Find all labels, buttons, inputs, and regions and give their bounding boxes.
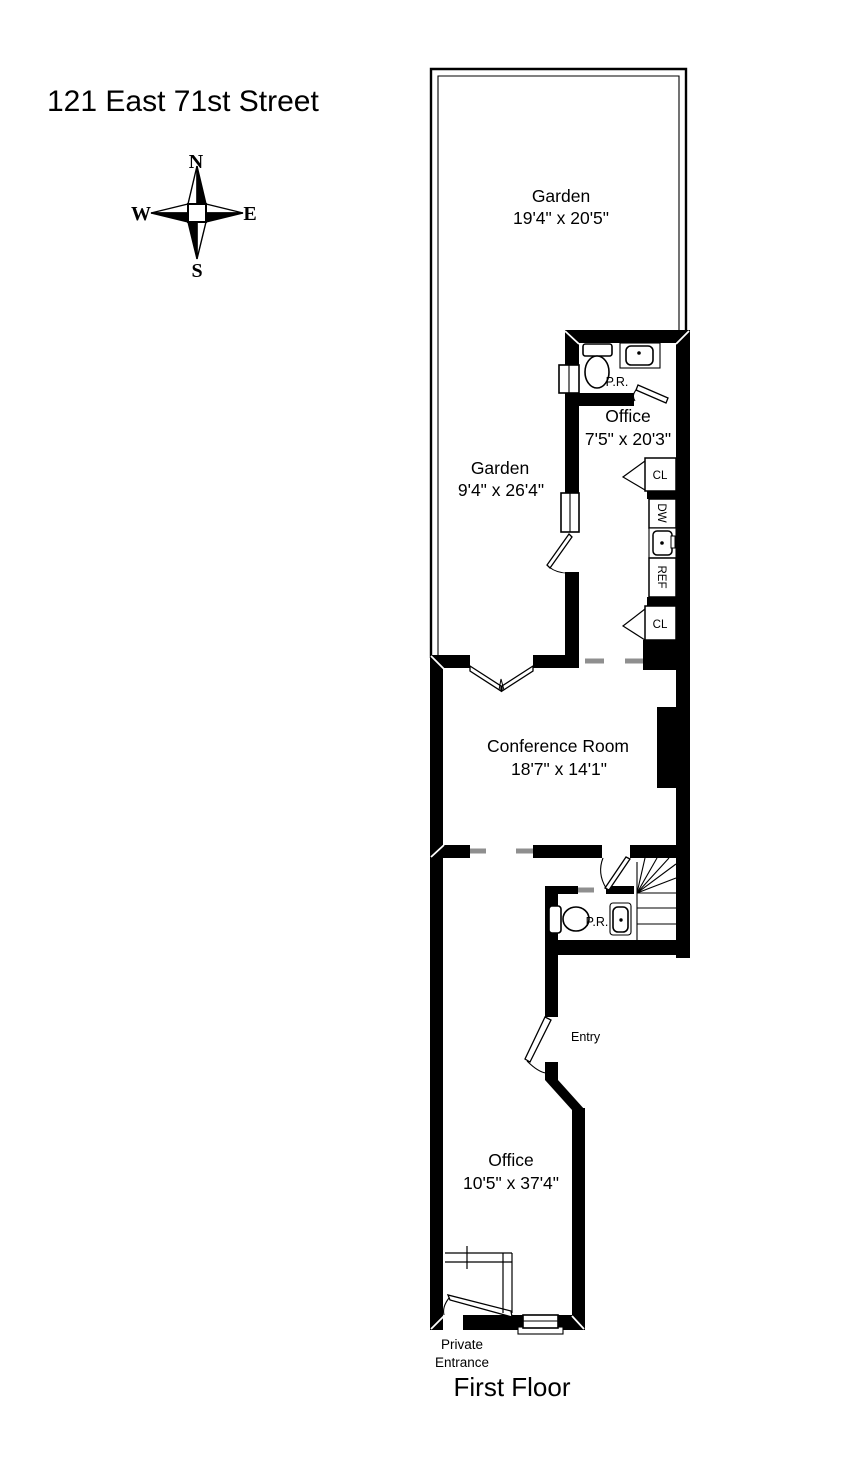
office-top-dims: 7'5" x 20'3" bbox=[585, 429, 671, 449]
sink-icon bbox=[620, 343, 660, 368]
french-doors bbox=[470, 666, 533, 691]
compass-north-label: N bbox=[189, 151, 204, 173]
floorplan-page: 121 East 71st Street N S W E Garden 19'4… bbox=[0, 0, 844, 1467]
office-main-dims: 10'5" x 37'4" bbox=[463, 1173, 559, 1193]
pr-mid-label: P.R. bbox=[586, 915, 609, 929]
dishwasher-label: DW bbox=[655, 503, 667, 522]
door-private-entrance bbox=[444, 1295, 512, 1317]
floorplan-drawing: 121 East 71st Street N S W E Garden 19'4… bbox=[0, 0, 844, 1467]
door-garden bbox=[547, 534, 572, 573]
compass-icon bbox=[151, 166, 243, 259]
office-top-name: Office bbox=[605, 406, 650, 426]
window-garden-side bbox=[561, 493, 579, 532]
closet-top-label: CL bbox=[653, 470, 668, 482]
toilet-icon-2 bbox=[549, 906, 589, 933]
floor-label: First Floor bbox=[454, 1372, 571, 1402]
pr-top-label: P.R. bbox=[606, 375, 629, 389]
compass-east-label: E bbox=[243, 203, 256, 225]
sink-icon-2 bbox=[610, 903, 631, 935]
door-pr-top bbox=[633, 385, 668, 403]
window-pr-top bbox=[559, 365, 579, 393]
office-main-name: Office bbox=[488, 1150, 533, 1170]
closet-bottom-label: CL bbox=[653, 619, 668, 631]
door-stairs bbox=[601, 857, 630, 890]
compass-west-label: W bbox=[131, 203, 151, 225]
garden-side-dims: 9'4" x 26'4" bbox=[458, 480, 544, 500]
window-front bbox=[518, 1315, 563, 1334]
compass-south-label: S bbox=[191, 260, 202, 282]
closet-bottom bbox=[623, 606, 676, 640]
garden-top-dims: 19'4" x 20'5" bbox=[513, 208, 609, 228]
refrigerator-label: REF bbox=[655, 566, 667, 589]
entry-label: Entry bbox=[571, 1030, 601, 1044]
stairs bbox=[637, 858, 676, 940]
conference-dims: 18'7" x 14'1" bbox=[511, 759, 607, 779]
garden-top-name: Garden bbox=[532, 186, 590, 206]
kitchen-sink-icon bbox=[649, 528, 676, 558]
closet-top bbox=[623, 458, 676, 491]
garden-side-name: Garden bbox=[471, 458, 529, 478]
conference-name: Conference Room bbox=[487, 736, 629, 756]
private-entrance-label-line2: Entrance bbox=[435, 1355, 489, 1370]
private-entrance-label-line1: Private bbox=[441, 1337, 483, 1352]
plan-title: 121 East 71st Street bbox=[47, 85, 319, 118]
